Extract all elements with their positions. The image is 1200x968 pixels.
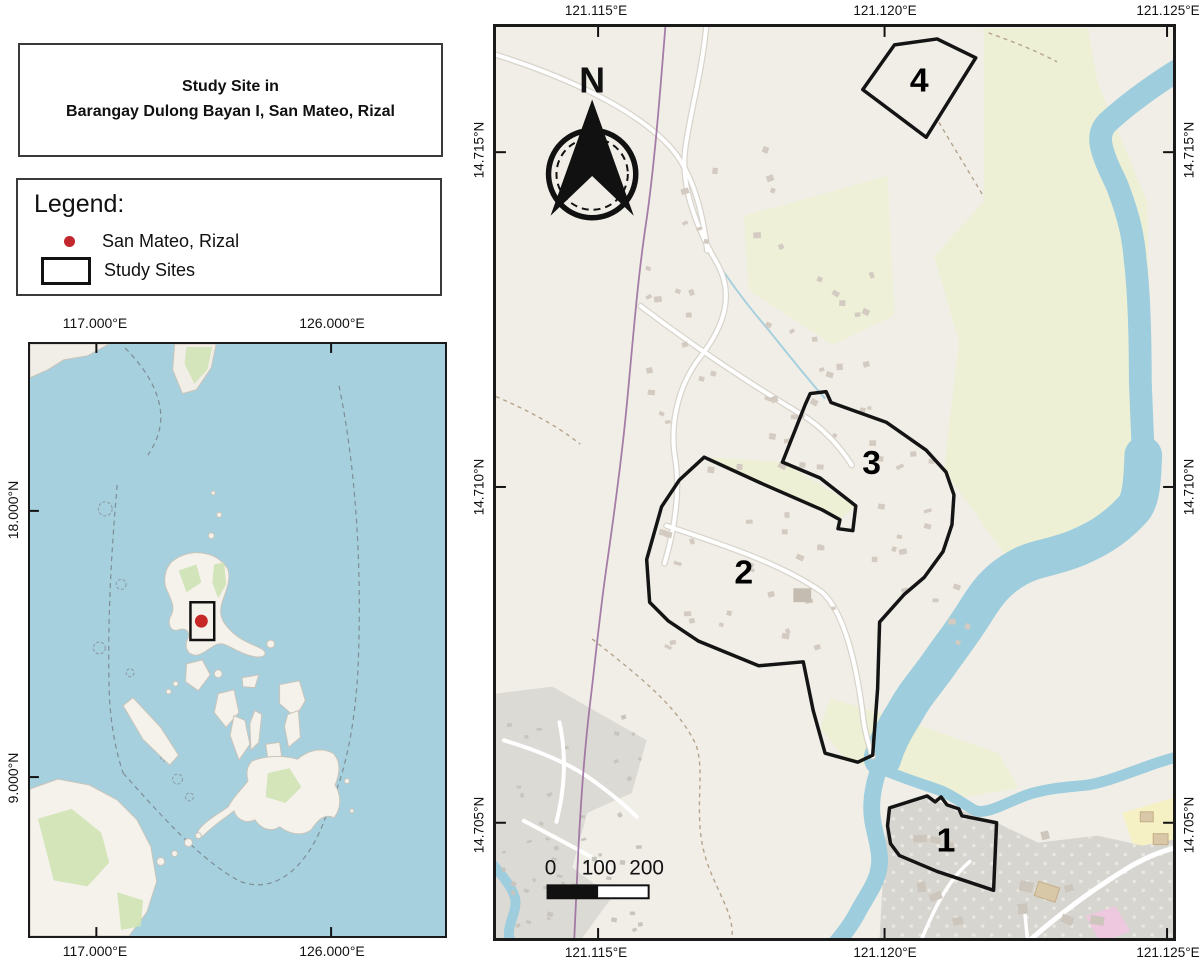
legend-item-san-mateo: San Mateo, Rizal — [32, 227, 426, 256]
site-label-1: 1 — [937, 822, 956, 860]
inset-lat-label-18n: 18.000°N — [5, 481, 21, 540]
inset-lat-label-9n: 9.000°N — [5, 753, 21, 804]
main-lon-label-top-1: 121.115°E — [565, 3, 627, 18]
study-site-swatch-icon — [41, 257, 91, 285]
inset-lon-label-top-right: 126.000°E — [299, 315, 365, 331]
main-lat-label-right-1: 14.715°N — [1182, 122, 1197, 178]
site-label-2: 2 — [734, 553, 753, 591]
scale-label-0: 0 — [545, 856, 557, 879]
main-lon-label-bottom-3: 121.125°E — [1136, 945, 1199, 960]
main-lon-label-bottom-2: 121.120°E — [853, 945, 916, 960]
inset-lon-label-top-left: 117.000°E — [63, 315, 128, 331]
legend: Legend: San Mateo, Rizal Study Sites — [16, 178, 442, 296]
san-mateo-red-dot — [195, 615, 208, 628]
legend-item-study-sites: Study Sites — [32, 256, 426, 285]
main-lat-label-left-1: 14.715°N — [472, 122, 487, 178]
title-line-2: Barangay Dulong Bayan I, San Mateo, Riza… — [66, 100, 395, 125]
legend-item-label: Study Sites — [104, 260, 195, 281]
inset-lon-label-bottom-left: 117.000°E — [63, 943, 128, 959]
scale-label-200: 200 — [629, 856, 664, 879]
main-map-dulong-bayan: 1 2 3 4 N 0 100 200 — [493, 24, 1176, 941]
site-label-4: 4 — [910, 62, 929, 100]
main-lon-label-top-2: 121.120°E — [853, 3, 916, 18]
map-title-box: Study Site in Barangay Dulong Bayan I, S… — [18, 43, 443, 157]
inset-map-philippines — [28, 342, 447, 938]
main-lon-label-bottom-1: 121.115°E — [565, 945, 627, 960]
red-dot-marker-icon — [64, 236, 75, 247]
main-lat-label-right-2: 14.710°N — [1182, 459, 1197, 515]
study-site-map-figure: Study Site in Barangay Dulong Bayan I, S… — [0, 0, 1200, 968]
legend-item-label: San Mateo, Rizal — [102, 231, 239, 252]
inset-lon-label-bottom-right: 126.000°E — [299, 943, 365, 959]
north-arrow-label: N — [579, 61, 605, 101]
inset-map-canvas — [30, 344, 445, 936]
main-lat-label-left-2: 14.710°N — [472, 459, 487, 515]
site-label-3: 3 — [862, 444, 881, 482]
main-lon-label-top-3: 121.125°E — [1136, 3, 1199, 18]
main-lat-label-left-3: 14.705°N — [472, 797, 487, 853]
main-lat-label-right-3: 14.705°N — [1182, 797, 1197, 853]
legend-heading: Legend: — [34, 190, 426, 219]
main-map-canvas: 1 2 3 4 N 0 100 200 — [496, 27, 1173, 938]
scale-label-100: 100 — [582, 856, 617, 879]
title-line-1: Study Site in — [182, 75, 279, 100]
